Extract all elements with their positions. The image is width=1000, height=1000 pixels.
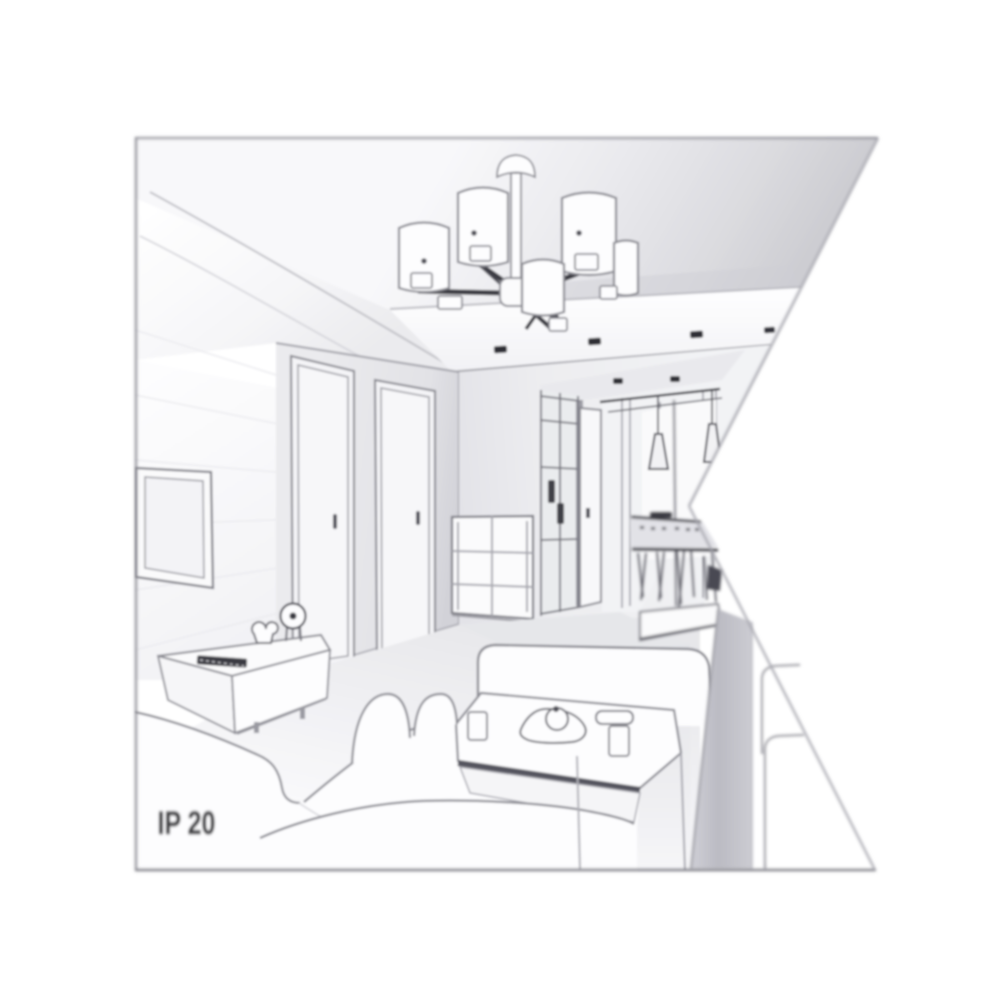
svg-text:IP 20: IP 20 [158, 806, 216, 842]
